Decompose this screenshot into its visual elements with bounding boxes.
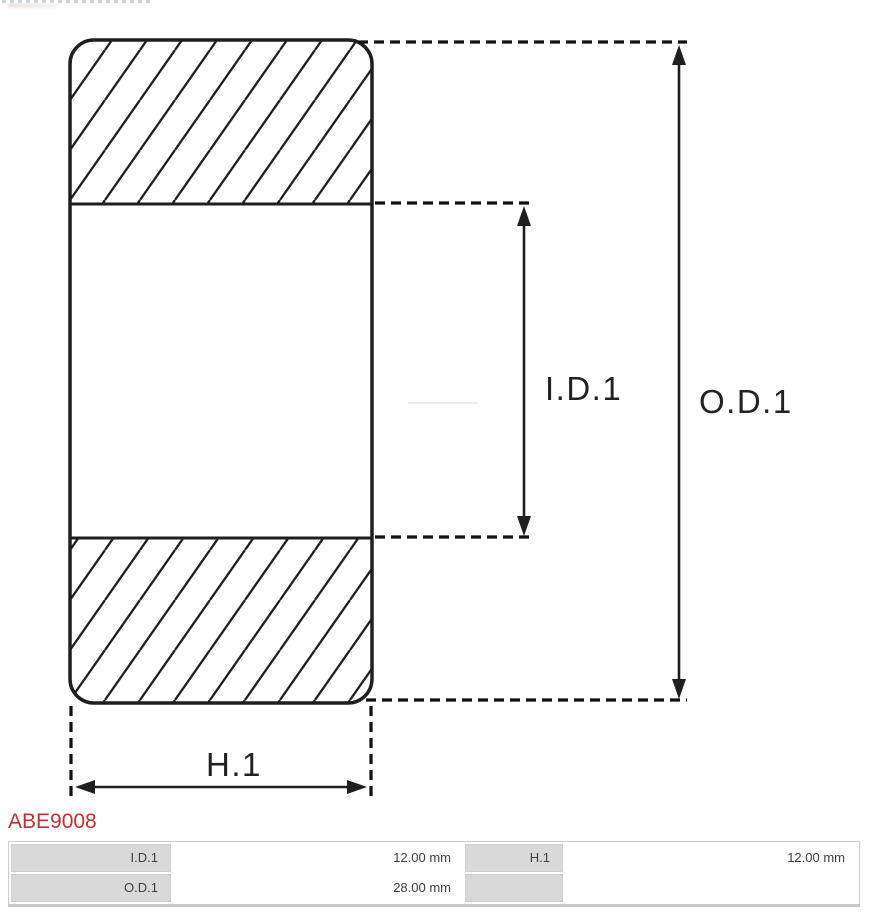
spec-value-h: 12.00 mm xyxy=(565,844,857,872)
arrowhead-down-icon xyxy=(517,516,531,536)
inner-diameter-label: I.D.1 xyxy=(545,370,622,407)
outer-ring-hatch-top xyxy=(70,40,372,204)
height-label: H.1 xyxy=(206,746,262,783)
dimension-arrow-inner-diameter xyxy=(517,206,531,536)
bearing-body xyxy=(70,40,372,703)
arrowhead-right-icon xyxy=(347,780,367,794)
bearing-cross-section-diagram: I.D.1 O.D.1 H.1 xyxy=(0,0,871,805)
dimension-arrow-outer-diameter xyxy=(672,45,686,699)
spec-label-od: O.D.1 xyxy=(11,874,171,902)
spec-table: I.D.1 12.00 mm H.1 12.00 mm O.D.1 28.00 … xyxy=(8,841,860,907)
spec-label-h: H.1 xyxy=(465,844,563,872)
arrowhead-up-icon xyxy=(672,45,686,65)
outer-diameter-label: O.D.1 xyxy=(699,383,793,420)
spec-value-id: 12.00 mm xyxy=(173,844,463,872)
spec-label-empty xyxy=(465,874,563,902)
arrowhead-down-icon xyxy=(672,679,686,699)
part-number: ABE9008 xyxy=(8,809,97,834)
spec-value-empty xyxy=(565,874,857,902)
spec-label-id: I.D.1 xyxy=(11,844,171,872)
product-drawing-page: I.D.1 O.D.1 H.1 ABE9008 I.D.1 12.00 mm H… xyxy=(0,0,871,913)
arrowhead-up-icon xyxy=(517,206,531,226)
arrowhead-left-icon xyxy=(75,780,95,794)
outer-ring-hatch-bottom xyxy=(70,538,372,703)
spec-value-od: 28.00 mm xyxy=(173,874,463,902)
